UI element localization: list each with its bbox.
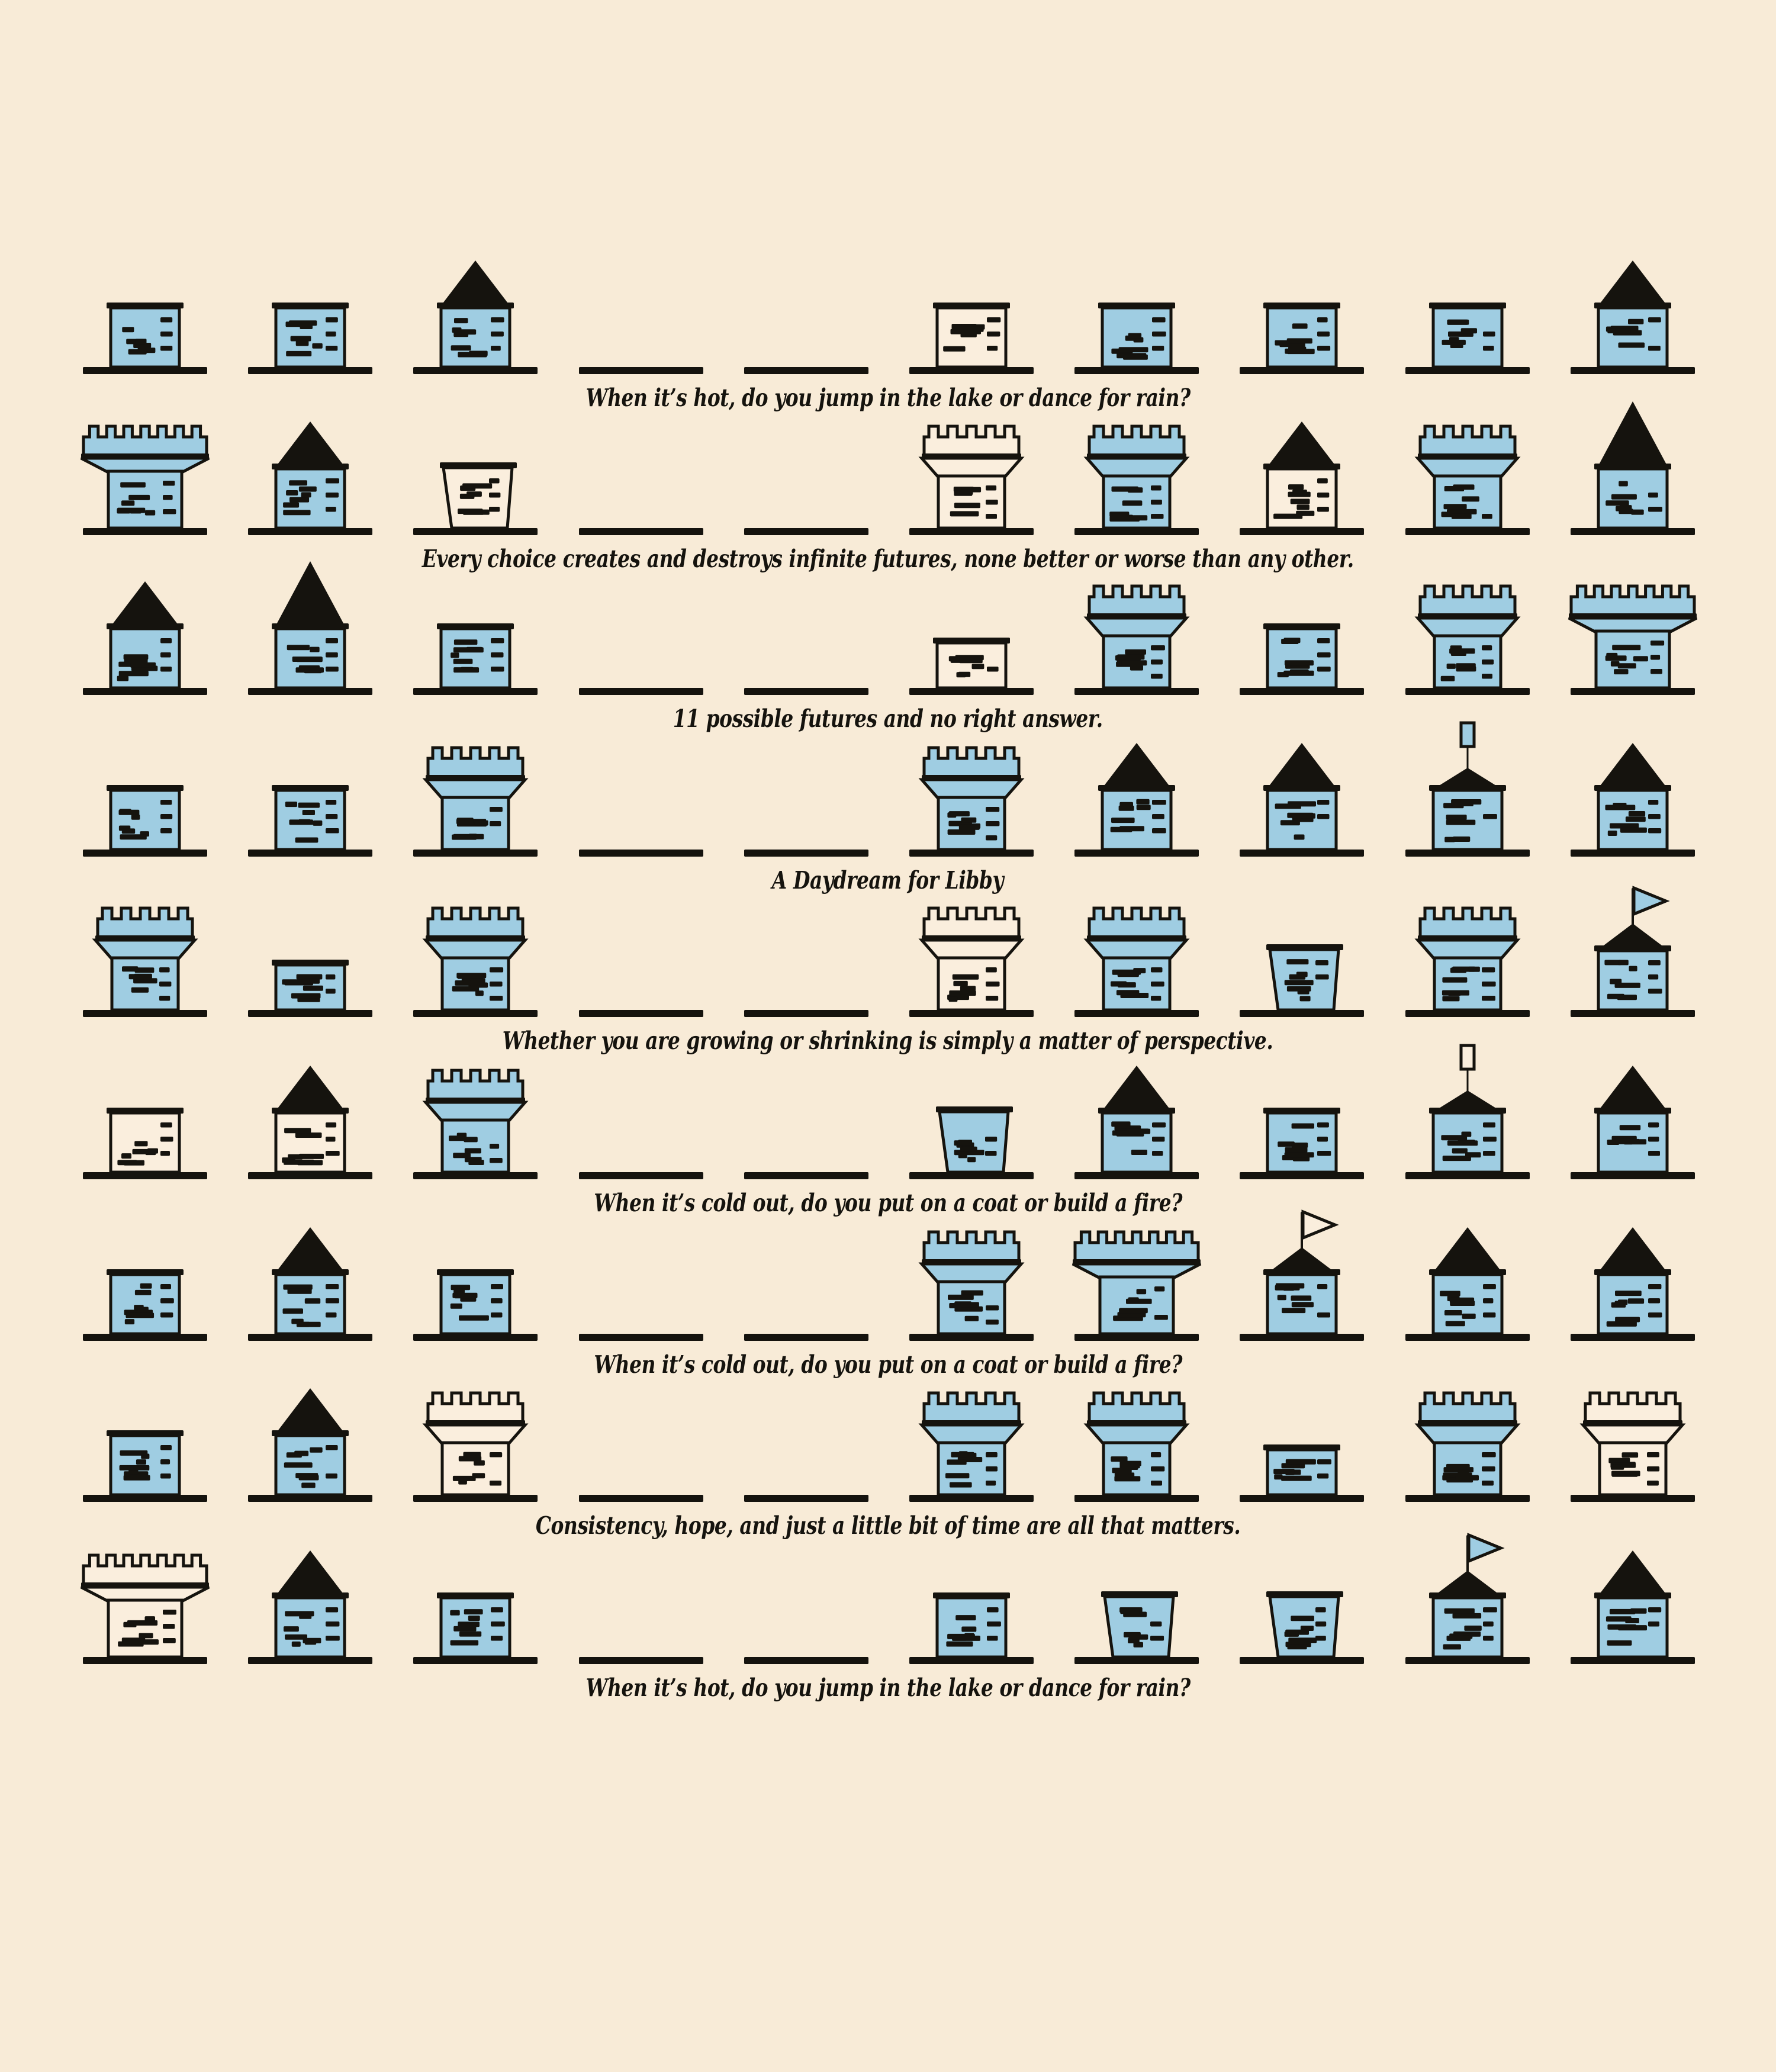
- tower-roof-pennant: [1568, 868, 1698, 1022]
- tower-plain: [1237, 1030, 1367, 1184]
- tower-turret: [906, 868, 1037, 1022]
- empty-plot: [741, 868, 871, 1022]
- tower-plain: [906, 1515, 1037, 1669]
- tower-turret: [906, 1353, 1037, 1507]
- tower-turret: [1402, 546, 1533, 700]
- tower-plain: [410, 1515, 540, 1669]
- tower-roof: [245, 1515, 375, 1669]
- tower-taper: [906, 1030, 1037, 1184]
- tower-roof: [1568, 386, 1698, 540]
- empty-plot: [741, 1515, 871, 1669]
- empty-plot: [741, 546, 871, 700]
- tower-plain: [906, 546, 1037, 700]
- tower-plain: [1237, 546, 1367, 700]
- empty-plot: [576, 1515, 706, 1669]
- tower-plain: [245, 868, 375, 1022]
- tower-roof: [1568, 707, 1698, 861]
- empty-plot: [576, 1353, 706, 1507]
- tower-plain: [80, 707, 210, 861]
- tower-turret: [906, 707, 1037, 861]
- tower-taper: [1237, 1515, 1367, 1669]
- empty-plot: [576, 868, 706, 1022]
- tower-roof: [1402, 1192, 1533, 1346]
- tower-plain: [1072, 225, 1202, 379]
- tower-roof-pennant: [1402, 1515, 1533, 1669]
- tower-plain: [1237, 1353, 1367, 1507]
- tower-turretwide: [80, 386, 210, 540]
- tower-turretwide: [1072, 1192, 1202, 1346]
- tower-roof: [1237, 386, 1367, 540]
- tower-turret: [1072, 1353, 1202, 1507]
- tower-roof: [245, 546, 375, 700]
- tower-taper: [1237, 868, 1367, 1022]
- tower-roof: [245, 1192, 375, 1346]
- caption-text: When it’s hot, do you jump in the lake o…: [585, 1675, 1190, 1701]
- tower-turret: [906, 386, 1037, 540]
- empty-plot: [576, 1192, 706, 1346]
- tower-turret: [1072, 546, 1202, 700]
- empty-plot: [741, 386, 871, 540]
- tower-turret: [906, 1192, 1037, 1346]
- empty-plot: [576, 225, 706, 379]
- tower-plain: [410, 1192, 540, 1346]
- tower-roof: [410, 225, 540, 379]
- empty-plot: [741, 707, 871, 861]
- tower-plain: [245, 707, 375, 861]
- tower-turret: [1072, 386, 1202, 540]
- tower-turret: [1402, 868, 1533, 1022]
- empty-plot: [741, 225, 871, 379]
- tower-roof-banner: [1402, 707, 1533, 861]
- tower-turret: [410, 707, 540, 861]
- tower-turret: [410, 1353, 540, 1507]
- tower-turret: [1568, 1353, 1698, 1507]
- empty-plot: [576, 386, 706, 540]
- tower-roof-pennant: [1237, 1192, 1367, 1346]
- tower-roof: [1072, 1030, 1202, 1184]
- tower-turret: [410, 868, 540, 1022]
- tower-plain: [80, 225, 210, 379]
- tower-plain: [1402, 225, 1533, 379]
- tower-taper: [410, 386, 540, 540]
- tower-turret: [1402, 386, 1533, 540]
- caption-text: 11 possible futures and no right answer.: [673, 706, 1103, 732]
- tower-roof: [80, 546, 210, 700]
- tower-taper: [1072, 1515, 1202, 1669]
- artwork-canvas: When it’s hot, do you jump in the lake o…: [0, 0, 1776, 2072]
- tower-plain: [245, 225, 375, 379]
- empty-plot: [741, 1030, 871, 1184]
- row-caption: When it’s hot, do you jump in the lake o…: [0, 1675, 1776, 1701]
- tower-roof: [245, 386, 375, 540]
- empty-plot: [576, 1030, 706, 1184]
- tower-roof: [1568, 1515, 1698, 1669]
- tower-plain: [80, 1353, 210, 1507]
- tower-roof: [1237, 707, 1367, 861]
- tower-turret: [80, 868, 210, 1022]
- caption-text: Every choice creates and destroys infini…: [422, 546, 1354, 572]
- tower-turretwide: [80, 1515, 210, 1669]
- tower-plain: [1237, 225, 1367, 379]
- empty-plot: [741, 1192, 871, 1346]
- tower-plain: [410, 546, 540, 700]
- tower-plain: [906, 225, 1037, 379]
- tower-roof-banner: [1402, 1030, 1533, 1184]
- tower-plain: [80, 1030, 210, 1184]
- tower-roof: [245, 1030, 375, 1184]
- tower-turret: [1402, 1353, 1533, 1507]
- tower-roof: [245, 1353, 375, 1507]
- tower-turretwide: [1568, 546, 1698, 700]
- tower-turret: [410, 1030, 540, 1184]
- tower-roof: [1568, 1030, 1698, 1184]
- empty-plot: [576, 546, 706, 700]
- tower-roof: [1568, 225, 1698, 379]
- empty-plot: [576, 707, 706, 861]
- empty-plot: [741, 1353, 871, 1507]
- tower-roof: [1072, 707, 1202, 861]
- tower-plain: [80, 1192, 210, 1346]
- tower-roof: [1568, 1192, 1698, 1346]
- tower-turret: [1072, 868, 1202, 1022]
